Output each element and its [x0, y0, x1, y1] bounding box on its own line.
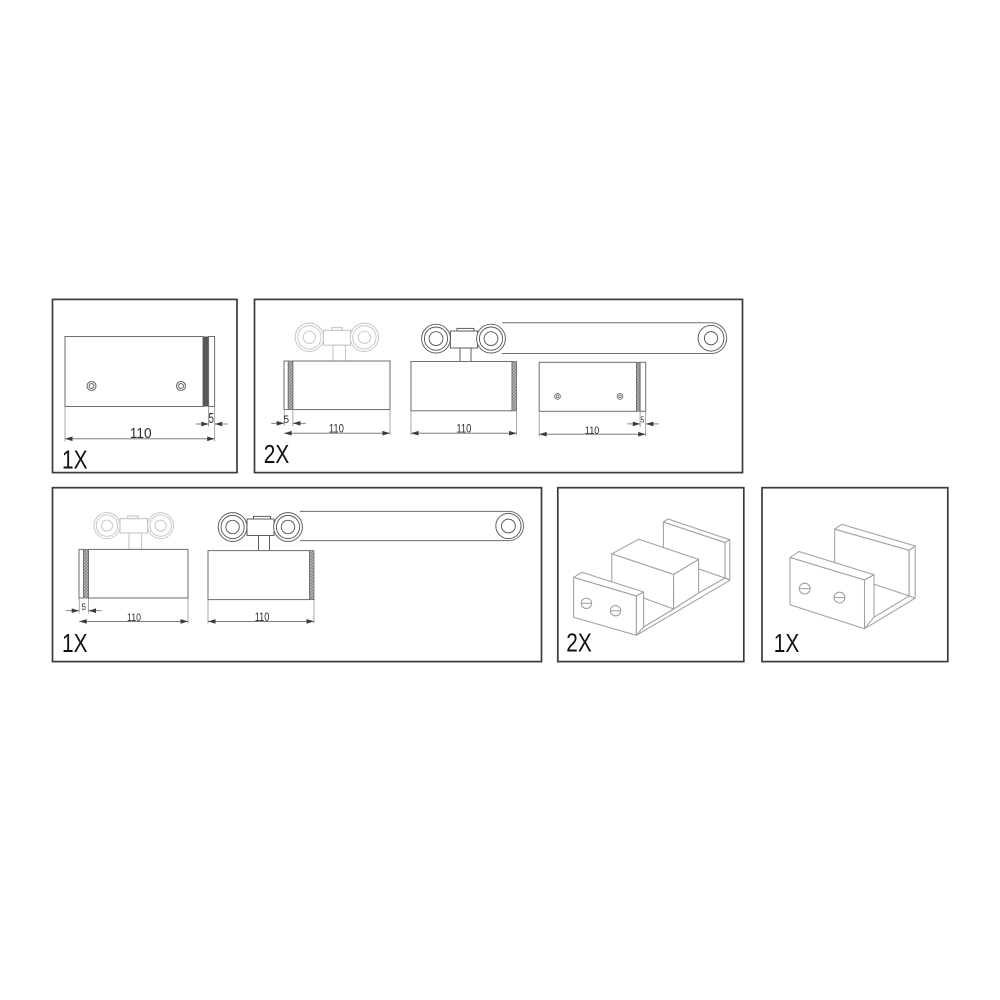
svg-text:1X: 1X: [774, 628, 800, 658]
svg-text:1X: 1X: [62, 444, 88, 474]
svg-text:5: 5: [284, 414, 290, 426]
svg-text:5: 5: [209, 410, 214, 427]
svg-text:1X: 1X: [62, 628, 88, 658]
svg-text:110: 110: [456, 422, 471, 436]
svg-text:110: 110: [255, 610, 270, 624]
svg-text:2X: 2X: [264, 439, 290, 469]
svg-text:5: 5: [641, 415, 645, 425]
svg-text:110: 110: [585, 425, 600, 437]
svg-text:2X: 2X: [566, 627, 592, 657]
svg-text:110: 110: [130, 425, 152, 442]
svg-text:5: 5: [81, 602, 86, 613]
svg-text:110: 110: [127, 612, 141, 624]
svg-text:110: 110: [329, 422, 344, 436]
